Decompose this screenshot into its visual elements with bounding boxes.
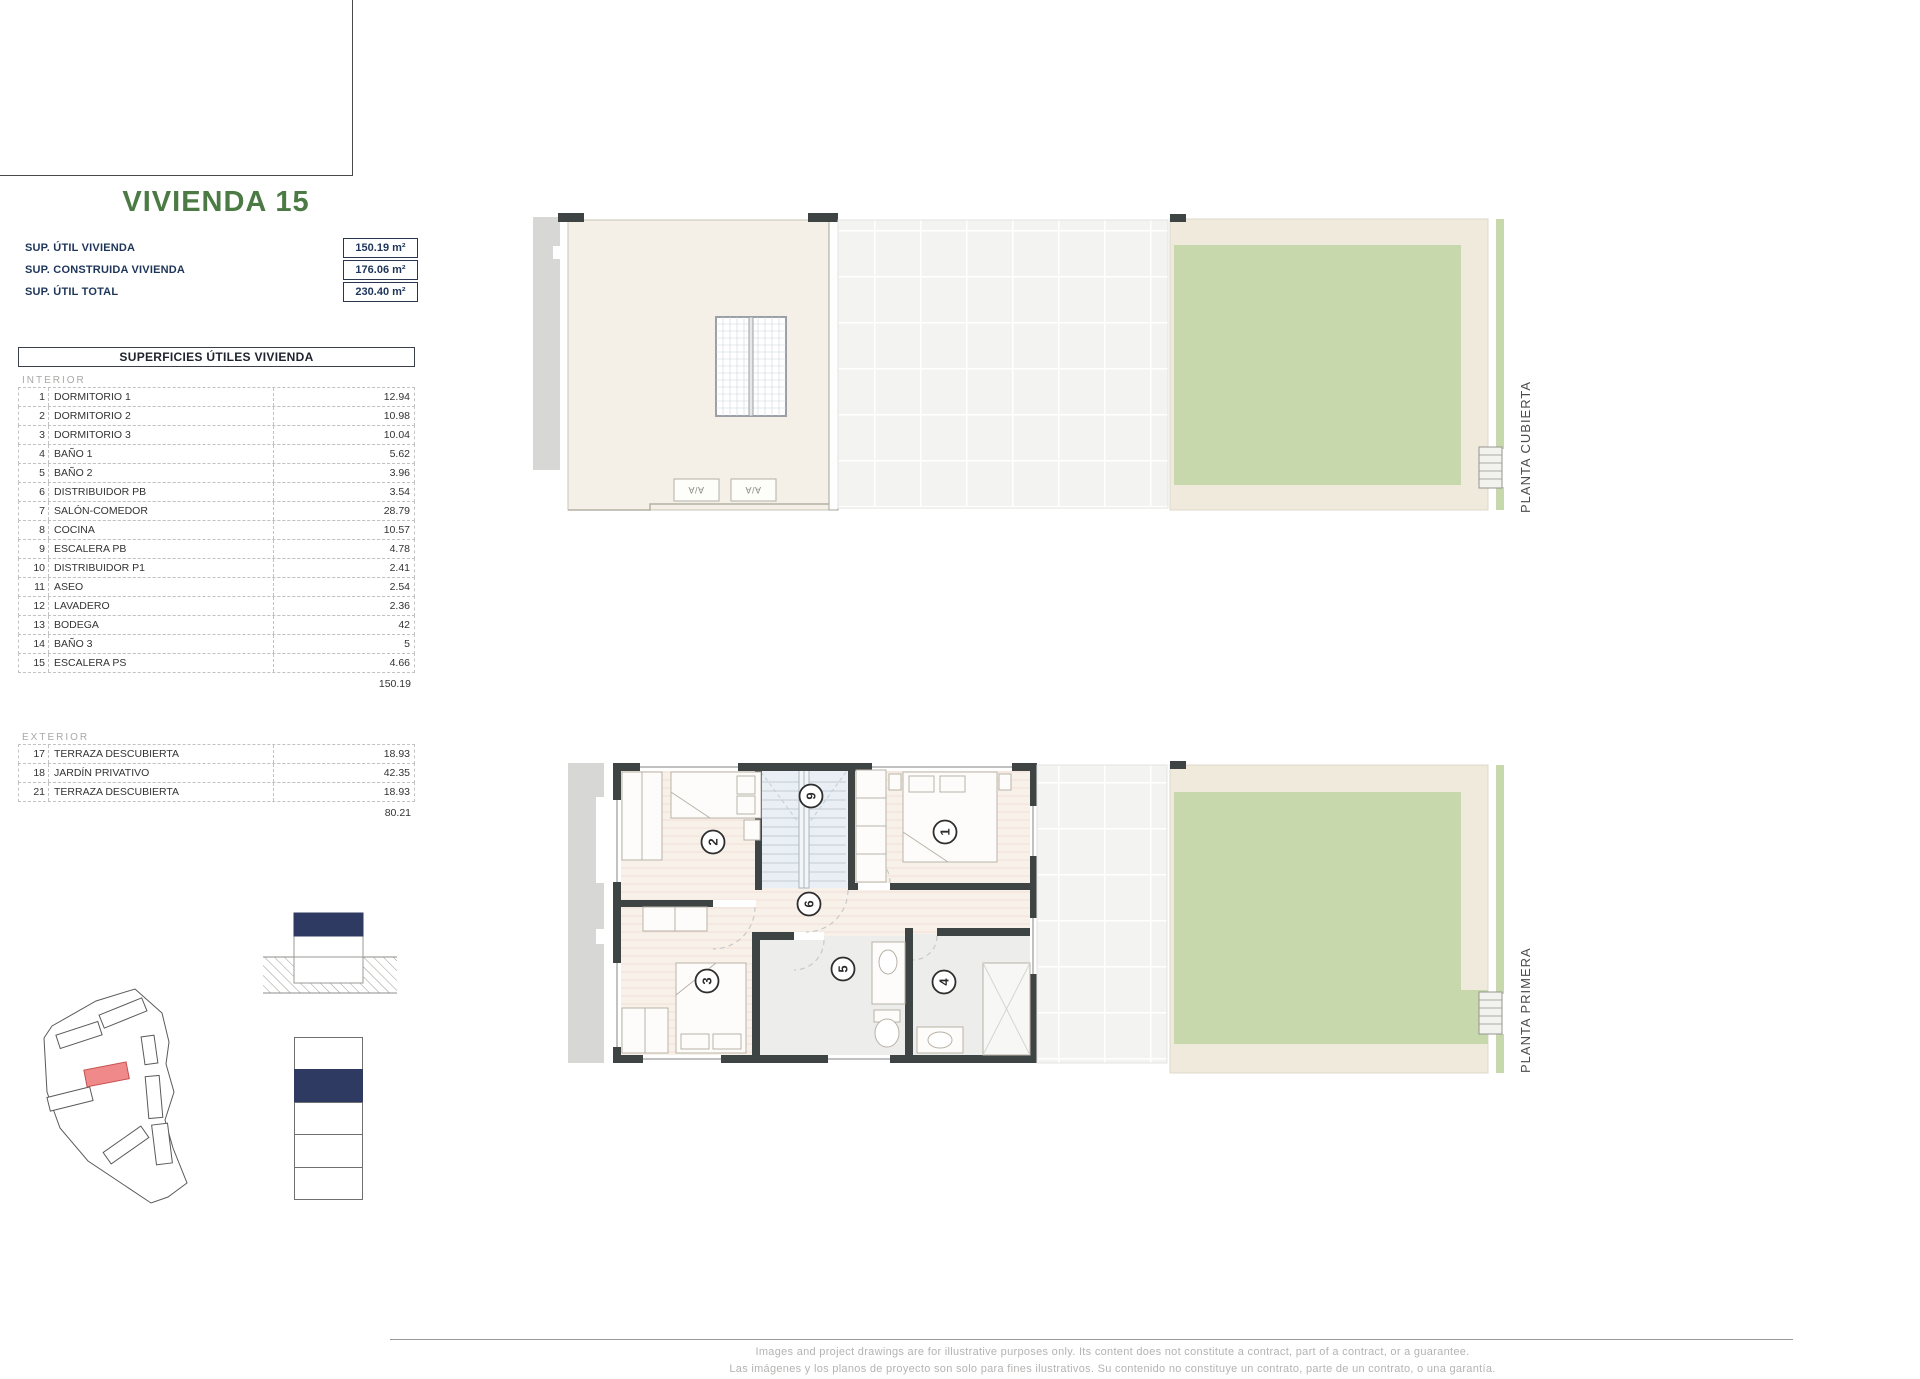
site-plan bbox=[35, 980, 195, 1210]
garden bbox=[1170, 214, 1507, 510]
nightstand bbox=[999, 774, 1011, 790]
skylight bbox=[716, 317, 786, 416]
svg-text:4: 4 bbox=[937, 978, 952, 986]
room-number-3: 3 bbox=[696, 970, 719, 993]
nightstand bbox=[889, 774, 901, 790]
level-row bbox=[294, 1102, 363, 1135]
terrace-tiles bbox=[838, 220, 1168, 508]
summary-value: 150.19 m² bbox=[343, 238, 418, 258]
garden bbox=[1170, 761, 1507, 1073]
summary-value: 176.06 m² bbox=[343, 260, 418, 280]
table-row: 10DISTRIBUIDOR P12.41 bbox=[18, 558, 415, 578]
section-floor bbox=[294, 936, 363, 957]
summary-row: SUP. CONSTRUIDA VIVIENDA 176.06 m² bbox=[25, 260, 418, 280]
table-row: 14BAÑO 35 bbox=[18, 634, 415, 654]
room-number-9: 9 bbox=[800, 785, 823, 808]
svg-text:2: 2 bbox=[706, 838, 721, 845]
footer-line-en: Images and project drawings are for illu… bbox=[425, 1344, 1800, 1361]
room-number-2: 2 bbox=[702, 831, 725, 854]
garden-stairs bbox=[1479, 447, 1502, 488]
table-row: 7SALÓN-COMEDOR28.79 bbox=[18, 501, 415, 521]
table-row: 9ESCALERA PB4.78 bbox=[18, 539, 415, 559]
lawn bbox=[1174, 245, 1461, 485]
titleblock-horizontal-rule bbox=[0, 175, 353, 176]
summary-row: SUP. ÚTIL VIVIENDA 150.19 m² bbox=[25, 238, 418, 258]
room-number-4: 4 bbox=[933, 971, 956, 994]
pillow bbox=[737, 776, 755, 794]
roof-slab bbox=[568, 220, 830, 510]
svg-text:5: 5 bbox=[836, 965, 851, 972]
svg-text:1: 1 bbox=[938, 828, 953, 835]
ac-unit-label: A/A bbox=[745, 485, 761, 495]
summary-label: SUP. CONSTRUIDA VIVIENDA bbox=[25, 264, 185, 276]
svg-text:9: 9 bbox=[804, 792, 819, 799]
level-row-highlighted bbox=[294, 1069, 363, 1102]
areas-table: SUPERFICIES ÚTILES VIVIENDA INTERIOR 1DO… bbox=[18, 347, 415, 819]
summary-value: 230.40 m² bbox=[343, 282, 418, 302]
plan-cubierta: A/A A/A PLANTA CUBIERTA bbox=[460, 170, 1560, 570]
table-row: 15ESCALERA PS4.66 bbox=[18, 653, 415, 673]
terrace-tiles bbox=[1037, 765, 1167, 1063]
table-row: 8COCINA10.57 bbox=[18, 520, 415, 540]
table-row: 6DISTRIBUIDOR PB3.54 bbox=[18, 482, 415, 502]
table-row: 2DORMITORIO 210.98 bbox=[18, 406, 415, 426]
svg-text:6: 6 bbox=[802, 900, 817, 907]
plan-sheet: VIVIENDA 15 SUP. ÚTIL VIVIENDA 150.19 m²… bbox=[0, 0, 1920, 1379]
plan-label-cubierta: PLANTA CUBIERTA bbox=[1518, 381, 1533, 513]
exterior-total: 80.21 bbox=[18, 807, 415, 819]
room-number-6: 6 bbox=[798, 893, 821, 916]
level-row bbox=[294, 1037, 363, 1070]
wall-segment bbox=[808, 213, 838, 222]
lawn bbox=[1174, 792, 1461, 1044]
footer-disclaimer: Images and project drawings are for illu… bbox=[425, 1344, 1800, 1377]
table-row: 13BODEGA42 bbox=[18, 615, 415, 635]
level-row bbox=[294, 1134, 363, 1167]
room-number-1: 1 bbox=[934, 821, 957, 844]
table-row: 17TERRAZA DESCUBIERTA18.93 bbox=[18, 744, 415, 764]
table-row: 12LAVADERO2.36 bbox=[18, 596, 415, 616]
interior-total: 150.19 bbox=[18, 678, 415, 690]
plan-primera: 2 9 6 3 5 4 1 bbox=[460, 740, 1560, 1090]
toilet-bowl bbox=[875, 1019, 899, 1047]
pillow bbox=[681, 1034, 709, 1049]
section-diagram bbox=[250, 905, 410, 1005]
table-row: 11ASEO2.54 bbox=[18, 577, 415, 597]
exterior-section-label: EXTERIOR bbox=[22, 732, 415, 743]
ac-unit-label: A/A bbox=[688, 485, 704, 495]
pillow bbox=[737, 796, 755, 814]
table-row: 21TERRAZA DESCUBIERTA18.93 bbox=[18, 782, 415, 802]
ac-unit: A/A bbox=[731, 479, 776, 501]
ac-unit: A/A bbox=[674, 479, 719, 501]
plan-label-primera: PLANTA PRIMERA bbox=[1518, 947, 1533, 1073]
garden-stairs bbox=[1479, 992, 1502, 1034]
site-building bbox=[145, 1075, 163, 1118]
table-row: 18JARDÍN PRIVATIVO42.35 bbox=[18, 763, 415, 783]
summary-label: SUP. ÚTIL TOTAL bbox=[25, 286, 118, 298]
interior-section-label: INTERIOR bbox=[22, 375, 415, 386]
roof-parapet bbox=[829, 220, 838, 510]
table-row: 4BAÑO 15.62 bbox=[18, 444, 415, 464]
footer-line-es: Las imágenes y los planos de proyecto so… bbox=[425, 1361, 1800, 1378]
level-row bbox=[294, 1167, 363, 1200]
section-basement bbox=[294, 957, 363, 983]
pillow bbox=[940, 776, 965, 792]
areas-table-header: SUPERFICIES ÚTILES VIVIENDA bbox=[18, 347, 415, 367]
room-number-5: 5 bbox=[832, 958, 855, 981]
summary-label: SUP. ÚTIL VIVIENDA bbox=[25, 242, 135, 254]
level-stack-diagram bbox=[294, 1038, 363, 1200]
pillow bbox=[713, 1034, 741, 1049]
table-row: 1DORMITORIO 112.94 bbox=[18, 387, 415, 407]
section-highlighted-level bbox=[294, 913, 363, 936]
pillow bbox=[909, 776, 934, 792]
page-title: VIVIENDA 15 bbox=[16, 186, 416, 219]
wall-segment bbox=[558, 213, 584, 222]
table-row: 3DORMITORIO 310.04 bbox=[18, 425, 415, 445]
titleblock-vertical-rule bbox=[352, 0, 353, 176]
summary-row: SUP. ÚTIL TOTAL 230.40 m² bbox=[25, 282, 418, 302]
table-row: 5BAÑO 23.96 bbox=[18, 463, 415, 483]
svg-text:3: 3 bbox=[700, 977, 715, 984]
footer-rule bbox=[390, 1339, 1793, 1340]
nightstand bbox=[744, 820, 760, 840]
